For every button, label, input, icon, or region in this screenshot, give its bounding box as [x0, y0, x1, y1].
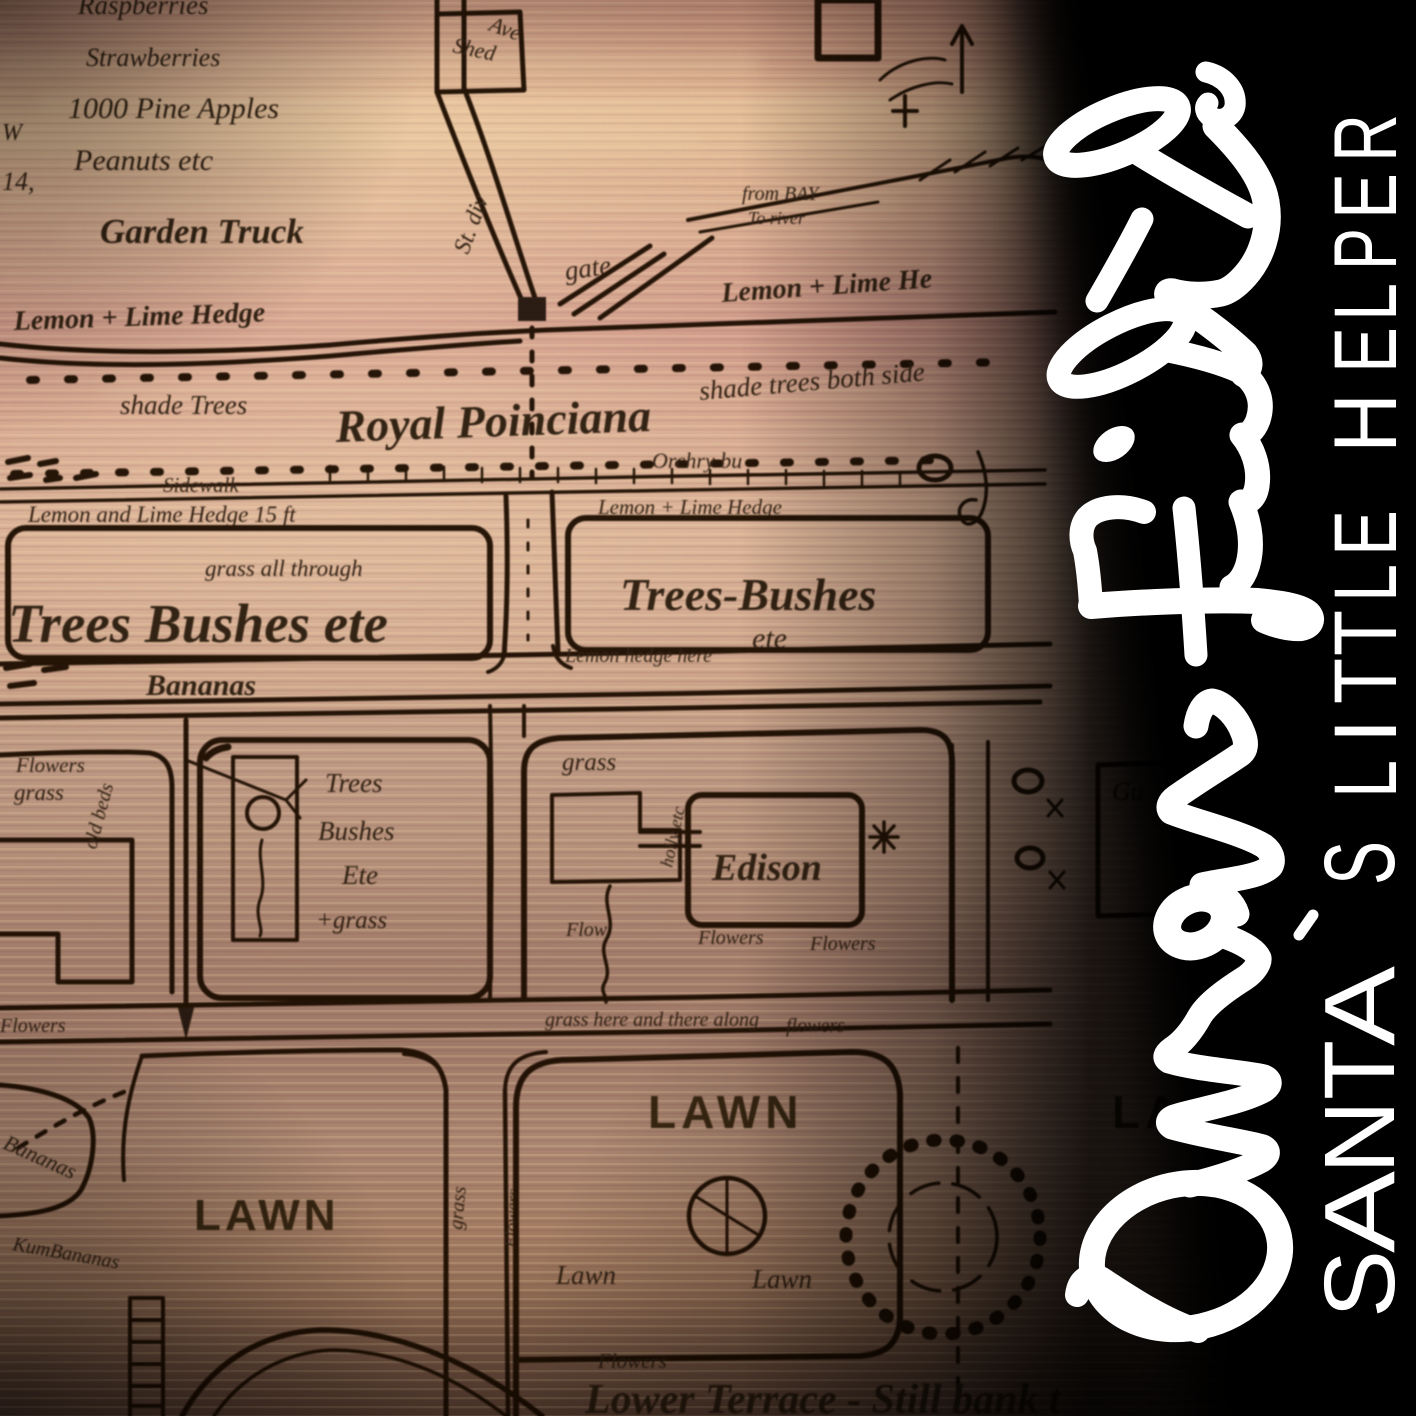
- svg-text:L: L: [1315, 760, 1415, 798]
- svg-text:A: A: [1304, 1171, 1416, 1253]
- svg-text:E: E: [1315, 173, 1415, 219]
- svg-text:T: T: [1304, 1040, 1416, 1100]
- svg-text:N: N: [1304, 1100, 1416, 1174]
- svg-text:P: P: [1315, 228, 1415, 270]
- svg-text:A: A: [1304, 966, 1416, 1046]
- svg-text:S: S: [1304, 1250, 1416, 1318]
- svg-text:L: L: [1315, 564, 1415, 602]
- svg-text:R: R: [1315, 114, 1415, 162]
- svg-text:T: T: [1315, 610, 1415, 656]
- svg-text:S: S: [1304, 841, 1416, 885]
- svg-text:E: E: [1315, 510, 1415, 556]
- svg-text:E: E: [1315, 327, 1415, 373]
- svg-text:L: L: [1315, 283, 1415, 321]
- svg-text:I: I: [1315, 718, 1415, 744]
- svg-text:H: H: [1315, 393, 1415, 453]
- svg-text:T: T: [1315, 658, 1415, 704]
